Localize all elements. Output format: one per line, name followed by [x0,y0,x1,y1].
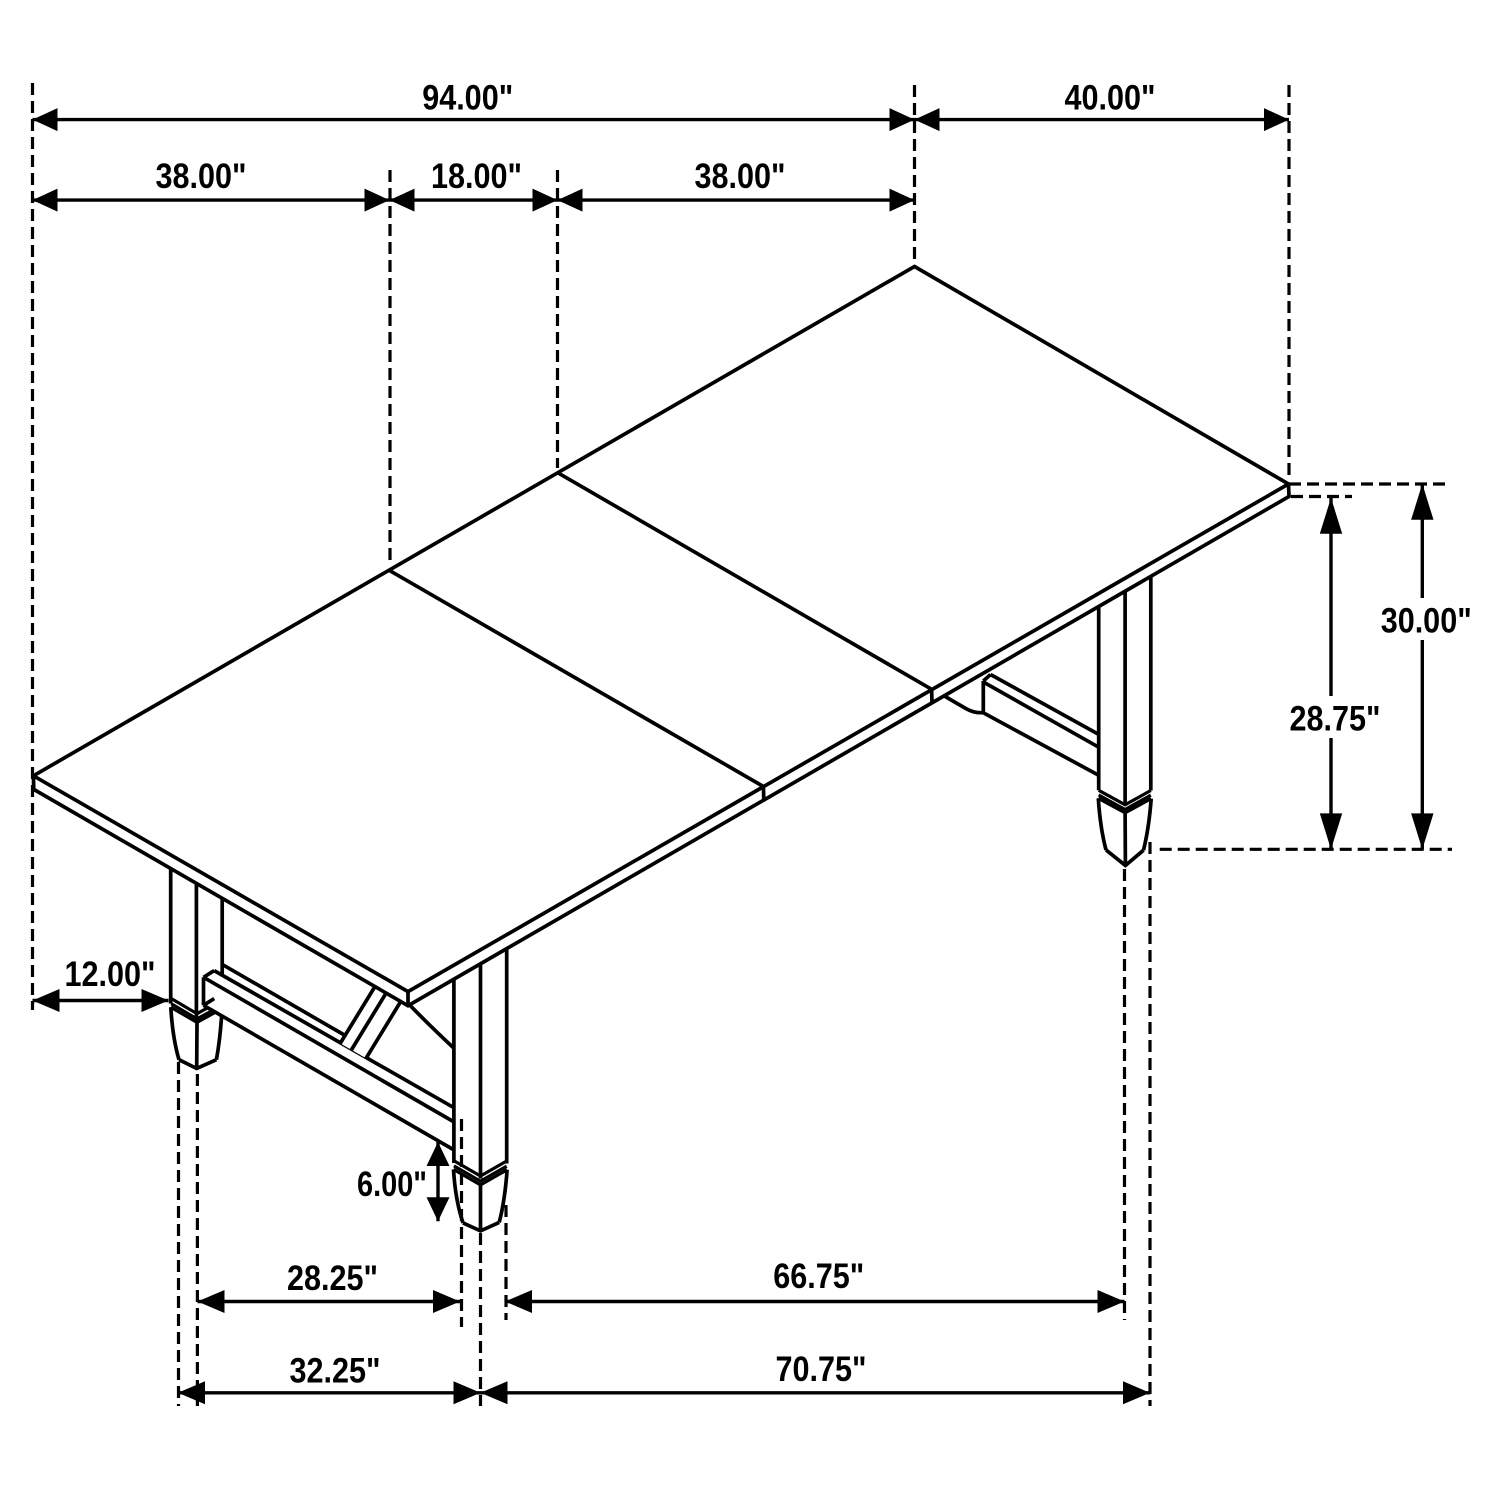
svg-text:6.00": 6.00" [357,1164,427,1204]
svg-text:12.00": 12.00" [65,954,156,994]
svg-text:38.00": 38.00" [695,156,786,196]
svg-text:40.00": 40.00" [1065,78,1156,118]
svg-text:32.25": 32.25" [290,1351,381,1391]
svg-text:38.00": 38.00" [156,156,247,196]
svg-text:28.75": 28.75" [1290,698,1381,738]
svg-text:66.75": 66.75" [773,1256,864,1296]
svg-text:18.00": 18.00" [431,156,522,196]
svg-text:30.00": 30.00" [1381,600,1472,640]
svg-text:70.75": 70.75" [776,1349,867,1389]
svg-text:94.00": 94.00" [422,78,513,118]
svg-text:28.25": 28.25" [287,1258,378,1298]
